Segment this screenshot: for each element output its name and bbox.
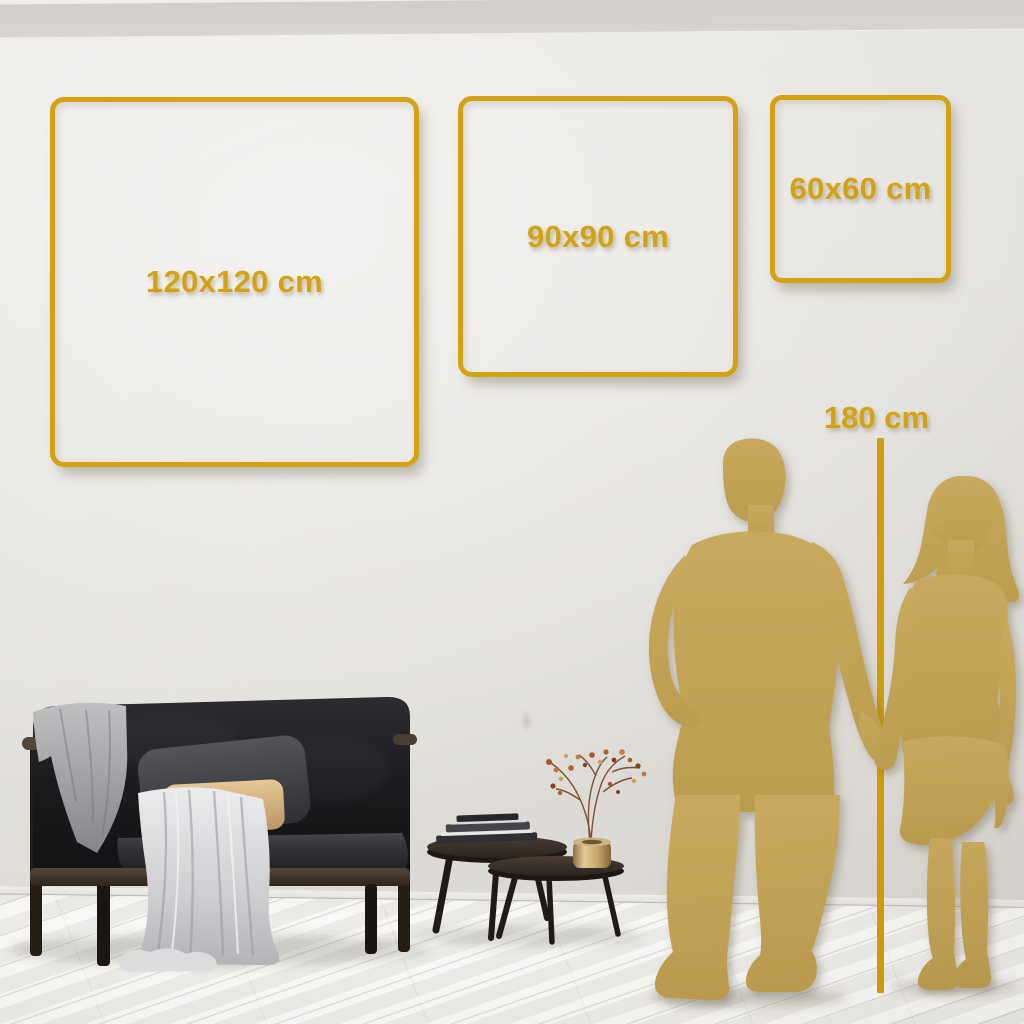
woman-silhouette — [875, 476, 1020, 990]
couple-silhouette — [649, 438, 1019, 1000]
room-scene — [0, 0, 1024, 1024]
table-leg — [436, 856, 450, 930]
sofa-leg — [365, 884, 377, 954]
man-silhouette — [649, 438, 889, 1000]
dried-flower-sprig — [551, 755, 640, 842]
wall-art-size-guide-scene: 120x120 cm 90x90 cm 60x60 cm 180 cm — [0, 0, 1024, 1024]
brass-vase — [573, 838, 611, 869]
table-leg — [549, 877, 552, 942]
table-leg — [604, 872, 618, 934]
sofa — [22, 697, 417, 972]
sofa-arm-rail — [393, 734, 417, 745]
book-stack — [435, 813, 537, 844]
coffee-tables — [427, 749, 646, 942]
height-reference-label: 180 cm — [790, 400, 963, 436]
